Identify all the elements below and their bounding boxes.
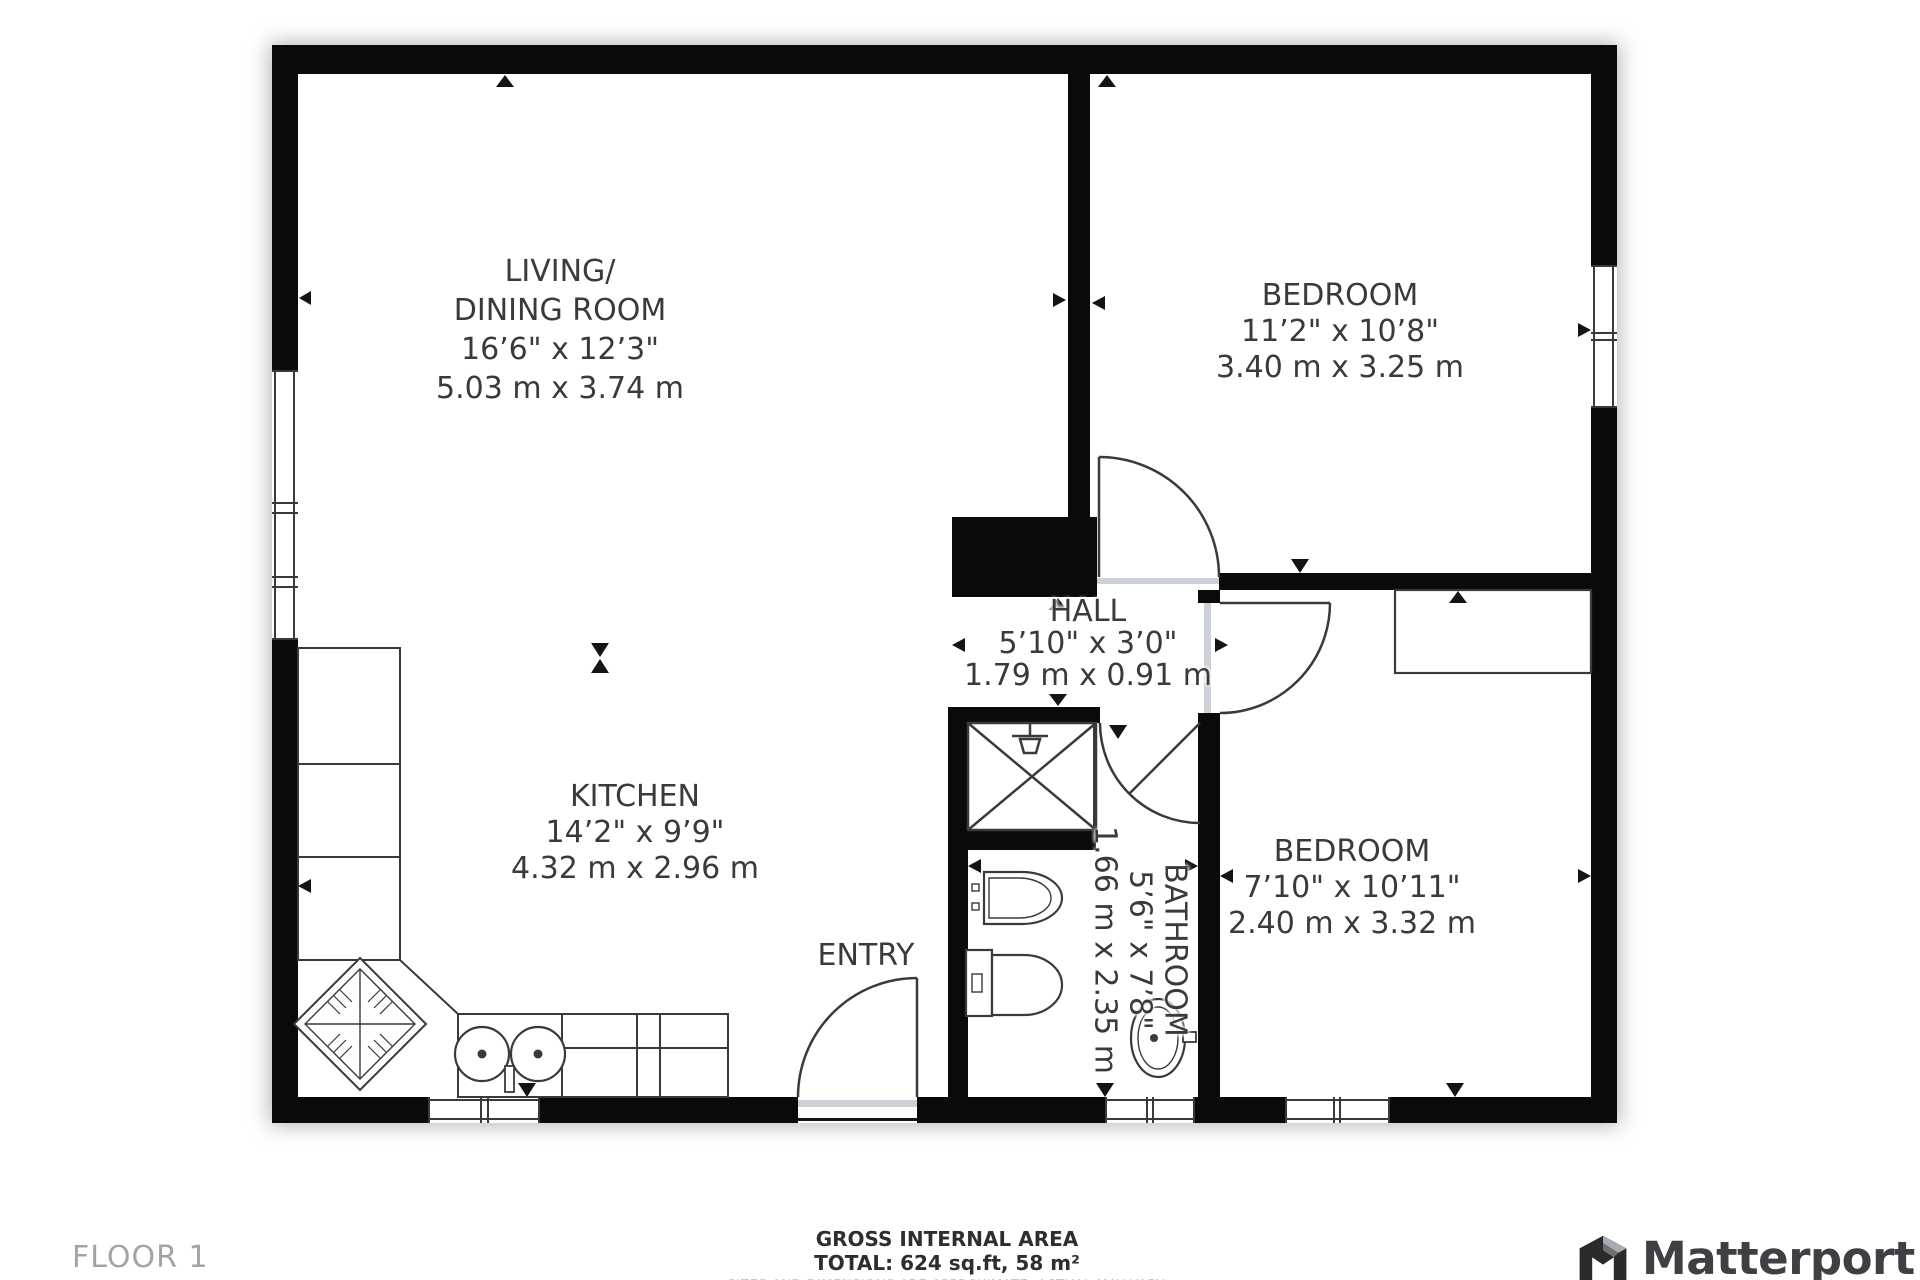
window-right-bedroom1 bbox=[1591, 265, 1617, 408]
window-bottom-bathroom bbox=[1105, 1097, 1195, 1123]
bidet bbox=[972, 872, 1062, 924]
gross-area-title: GROSS INTERNAL AREA bbox=[727, 1227, 1167, 1251]
floorplan-drawing bbox=[0, 0, 1920, 1280]
room-dims-imperial: 5’6" x 7’8" bbox=[1123, 826, 1158, 1074]
room-dims-metric: 2.40 m x 3.32 m bbox=[1228, 906, 1476, 942]
matterport-logo-text: Matterport bbox=[1642, 1234, 1915, 1280]
room-dims-imperial: 16’6" x 12’3" bbox=[436, 330, 684, 369]
room-dims-metric: 1.79 m x 0.91 m bbox=[964, 660, 1212, 692]
door-entry bbox=[798, 978, 917, 1097]
room-name: BEDROOM bbox=[1216, 278, 1464, 314]
door-bedroom1 bbox=[1099, 457, 1219, 577]
room-label-kitchen: KITCHEN 14’2" x 9’9" 4.32 m x 2.96 m bbox=[511, 779, 759, 887]
gross-area-total: TOTAL: 624 sq.ft, 58 m² bbox=[727, 1251, 1167, 1275]
window-left-living bbox=[272, 370, 298, 640]
room-name: LIVING/ bbox=[436, 252, 684, 291]
door-bedroom2 bbox=[1220, 603, 1330, 713]
door-bathroom bbox=[1100, 723, 1200, 823]
room-name: BATHROOM bbox=[1158, 826, 1193, 1074]
room-label-bedroom1: BEDROOM 11’2" x 10’8" 3.40 m x 3.25 m bbox=[1216, 278, 1464, 386]
room-dims-metric: 5.03 m x 3.74 m bbox=[436, 369, 684, 408]
room-dims-imperial: 7’10" x 10’11" bbox=[1228, 870, 1476, 906]
room-dims-imperial: 14’2" x 9’9" bbox=[511, 815, 759, 851]
room-name: KITCHEN bbox=[511, 779, 759, 815]
room-label-bathroom: BATHROOM 5’6" x 7’8" 1.66 m x 2.35 m bbox=[1088, 826, 1193, 1074]
area-disclaimer: SIZES AND DIMENSIONS ARE APPROXIMATE, AC… bbox=[727, 1275, 1167, 1280]
room-dims-imperial: 11’2" x 10’8" bbox=[1216, 314, 1464, 350]
room-name: BEDROOM bbox=[1228, 834, 1476, 870]
room-dims-metric: 3.40 m x 3.25 m bbox=[1216, 350, 1464, 386]
floor-label: FLOOR 1 bbox=[72, 1240, 209, 1275]
closet bbox=[1395, 590, 1591, 673]
room-label-bedroom2: BEDROOM 7’10" x 10’11" 2.40 m x 3.32 m bbox=[1228, 834, 1476, 942]
gross-area-block: GROSS INTERNAL AREA TOTAL: 624 sq.ft, 58… bbox=[727, 1227, 1167, 1280]
matterport-logo-icon bbox=[1576, 1234, 1630, 1280]
room-dims-metric: 4.32 m x 2.96 m bbox=[511, 851, 759, 887]
toilet bbox=[966, 950, 1062, 1016]
room-dims-imperial: 5’10" x 3’0" bbox=[964, 628, 1212, 660]
floorplan-page: LIVING/ DINING ROOM 16’6" x 12’3" 5.03 m… bbox=[0, 0, 1920, 1280]
stove bbox=[294, 958, 426, 1090]
room-label-entry: ENTRY bbox=[818, 938, 915, 973]
interior-walls bbox=[948, 74, 1591, 1101]
room-label-hall: HALL 5’10" x 3’0" 1.79 m x 0.91 m bbox=[964, 596, 1212, 692]
room-name: DINING ROOM bbox=[436, 291, 684, 330]
matterport-brand: Matterport bbox=[1576, 1234, 1915, 1280]
room-name: ENTRY bbox=[818, 938, 915, 973]
room-label-living-dining: LIVING/ DINING ROOM 16’6" x 12’3" 5.03 m… bbox=[436, 252, 684, 408]
window-bottom-bedroom2 bbox=[1285, 1097, 1390, 1123]
room-dims-metric: 1.66 m x 2.35 m bbox=[1088, 826, 1123, 1074]
room-name: HALL bbox=[964, 596, 1212, 628]
window-bottom-kitchen bbox=[428, 1097, 540, 1123]
